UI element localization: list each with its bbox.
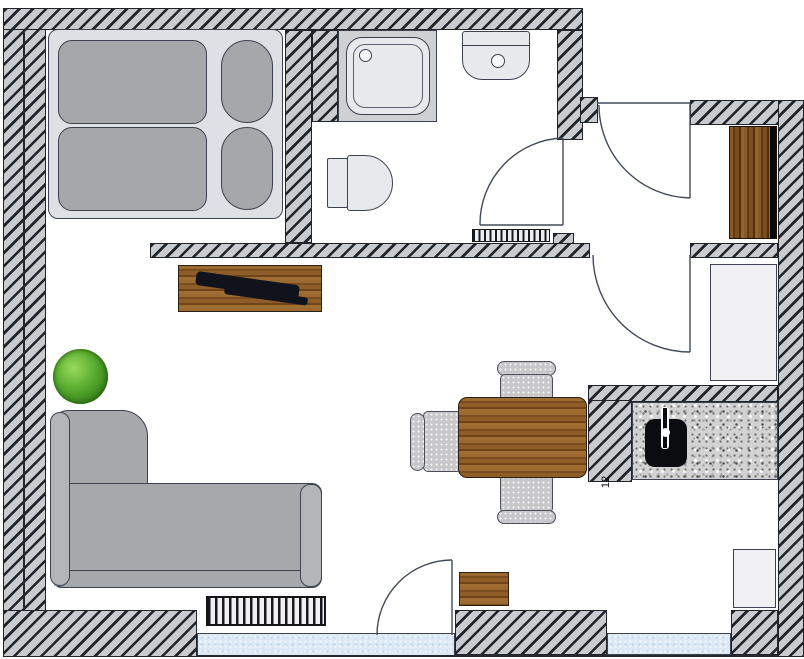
window-living-room [197,633,455,656]
sideboard [178,265,322,312]
shower-tray [346,37,430,115]
wall-shower-left [312,30,338,122]
shower-drain [359,49,372,62]
wall-left-divider-line [23,8,25,657]
wardrobe-shadow-strip [770,127,776,238]
bathroom-door-swing [480,138,563,225]
refrigerator [710,264,777,381]
wall-pier-bottom-right [731,610,778,655]
stool [459,572,509,606]
washbasin [462,31,530,80]
shower [338,30,437,122]
wall-bedroom-bathroom-divider [285,30,312,243]
wardrobe [729,126,777,239]
wall-mid-horizontal-east [690,243,778,258]
entrance-door-swing [599,105,690,198]
wall-left-exterior [3,8,46,657]
dining-chair-bottom-backrest [497,510,556,524]
kitchen-counter [632,402,778,480]
floor-plan: 12 [0,0,804,659]
counter-dimension-label: 12 [594,469,618,495]
wall-bathroom-east [557,30,583,140]
window-kitchen [607,633,731,655]
appliance-bottom-right [733,549,776,608]
dining-chair-left-backrest [410,413,425,471]
dining-chair-left-seat [423,411,462,472]
wall-pier-balcony [455,610,607,655]
wall-right-exterior [778,100,804,657]
dining-table [458,397,587,478]
radiator [206,596,326,626]
dining-chair-bottom-seat [500,474,553,513]
plant [53,349,108,404]
faucet-knob [661,428,670,437]
sofa-seat-line [70,570,304,571]
hall-door-swing [593,255,690,352]
wall-top-exterior [3,8,583,30]
sofa-armrest-left [50,412,70,586]
toilet-bowl [347,155,393,211]
pillow-top [221,40,273,123]
toilet-tank [327,158,348,208]
washbasin-edge-line [463,45,529,46]
mattress-top [58,40,207,124]
double-bed [48,29,283,219]
washbasin-faucet [491,54,505,68]
mattress-bottom [58,127,207,211]
pillow-bottom [221,127,273,210]
wall-mid-horizontal [150,243,590,258]
corner-sofa [52,410,322,588]
wall-entry-jamb-left [580,97,598,123]
sofa-armrest-right [300,484,322,587]
wall-bottom-left [3,610,197,657]
wall-bath-door-jamb [553,233,574,244]
ventilation-grille-bathroom [472,229,550,242]
balcony-door-swing [377,560,452,635]
